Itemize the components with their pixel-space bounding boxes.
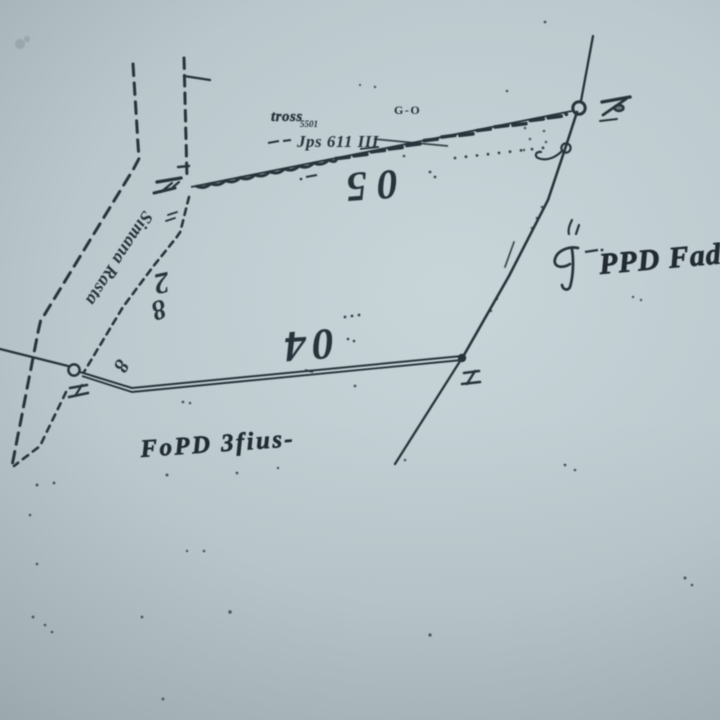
- svg-text:5501: 5501: [300, 119, 318, 129]
- svg-text:G-O: G-O: [394, 103, 421, 117]
- svg-text:FoPD 3fius-: FoPD 3fius-: [139, 425, 296, 463]
- svg-text:tross: tross: [271, 109, 303, 125]
- svg-text:PPD Fad: PPD Fad: [597, 237, 720, 281]
- svg-text:Simana Rasta: Simana Rasta: [82, 208, 158, 310]
- svg-text:04: 04: [276, 319, 335, 372]
- svg-text:8: 8: [108, 356, 134, 377]
- svg-text:05: 05: [334, 160, 399, 210]
